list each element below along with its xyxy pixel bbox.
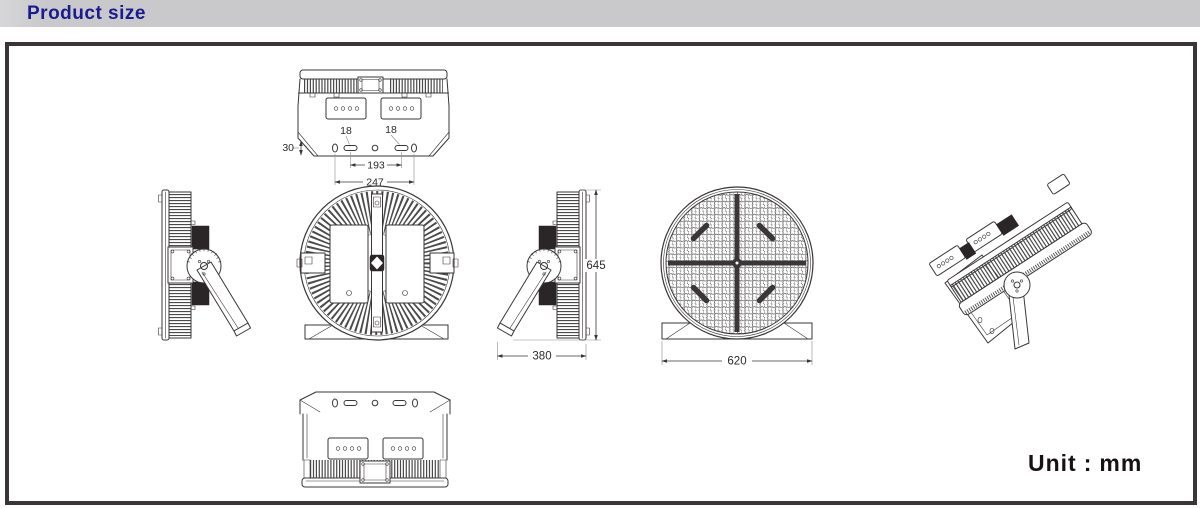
lamp-side-mirrored <box>498 190 590 340</box>
perspective-view-drawing <box>925 165 1100 360</box>
hanging-tabs <box>310 93 431 97</box>
dim-slot-spacing: 193 <box>367 160 385 172</box>
dim-plate-height: 30 <box>282 142 294 154</box>
mounting-holes <box>333 399 418 407</box>
driver-boxes <box>326 98 421 119</box>
dim-slot-left: 18 <box>340 125 352 137</box>
junction-box <box>358 77 383 93</box>
unit-prefix: Unit <box>1028 450 1077 476</box>
dim-bracket-depth: 380 <box>532 351 551 363</box>
side-view-right-drawing: 645 380 <box>485 182 615 378</box>
dimension-annotations: 620 <box>662 341 812 368</box>
page-title: Product size <box>0 0 1200 27</box>
unit-label: Unit:mm <box>1028 450 1142 477</box>
unit-value: mm <box>1099 450 1142 476</box>
back-view-drawing <box>295 185 460 347</box>
unit-separator: : <box>1084 450 1093 476</box>
top-view-drawing: 18 18 193 247 30 <box>278 60 463 192</box>
bottom-view-drawing <box>290 388 460 494</box>
mounting-holes <box>333 144 417 152</box>
driver-boxes <box>328 438 423 459</box>
center-spine <box>370 194 384 332</box>
junction-box <box>360 461 390 483</box>
dim-body-diameter: 620 <box>727 356 746 368</box>
dim-overall-height: 645 <box>586 260 605 272</box>
side-view-left-drawing <box>155 182 270 350</box>
page-header: Product size <box>0 0 1200 27</box>
dim-slot-right: 18 <box>385 124 397 136</box>
mount-plate <box>300 392 450 460</box>
front-view-drawing: 620 <box>650 185 820 377</box>
